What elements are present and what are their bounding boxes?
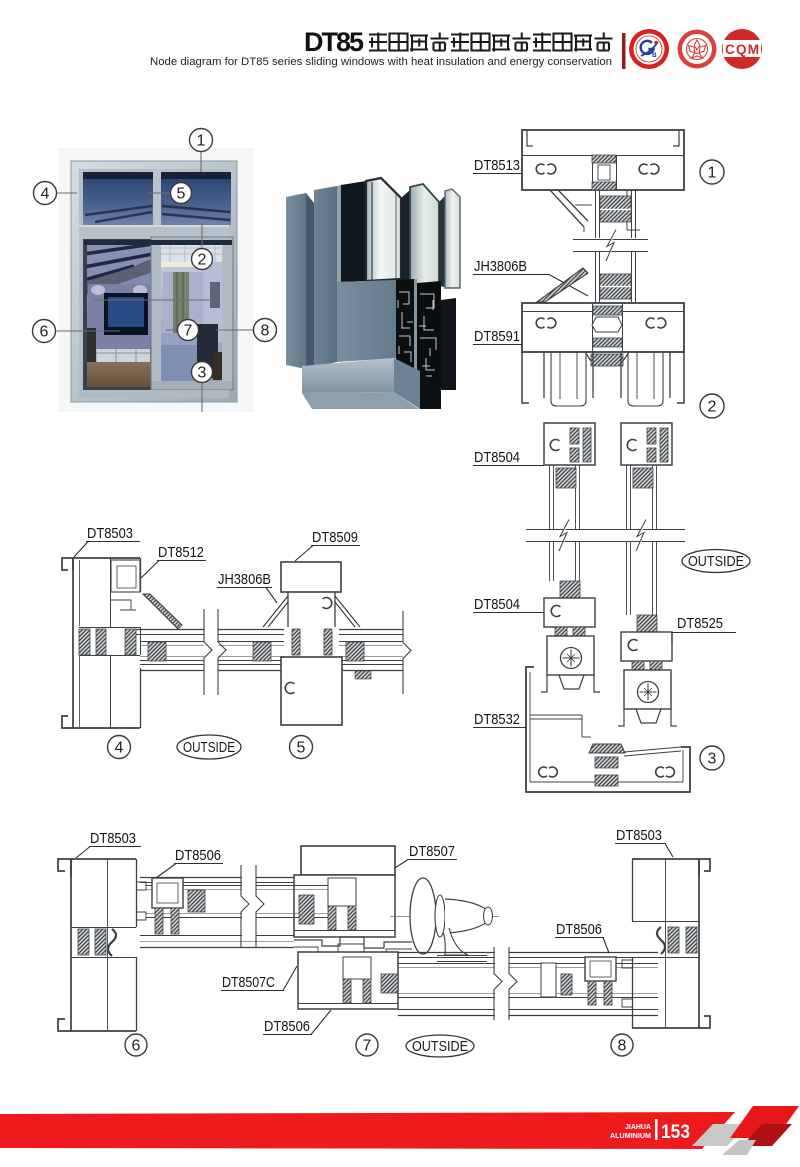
svg-text:DT8591: DT8591 bbox=[474, 328, 520, 345]
svg-text:DT8503: DT8503 bbox=[87, 525, 133, 542]
svg-text:DT8507C: DT8507C bbox=[222, 974, 275, 991]
svg-text:4: 4 bbox=[41, 186, 50, 203]
svg-text:ALUMINIUM: ALUMINIUM bbox=[610, 1131, 651, 1140]
svg-text:153: 153 bbox=[661, 1122, 690, 1143]
svg-text:DT8503: DT8503 bbox=[616, 827, 662, 844]
svg-text:3: 3 bbox=[708, 751, 717, 768]
svg-text:8: 8 bbox=[261, 323, 270, 340]
svg-text:DT8509: DT8509 bbox=[312, 529, 358, 546]
svg-text:DT8506: DT8506 bbox=[264, 1018, 310, 1035]
svg-text:DT8532: DT8532 bbox=[474, 711, 520, 728]
svg-text:CQM: CQM bbox=[725, 42, 759, 57]
svg-text:DT8506: DT8506 bbox=[175, 847, 221, 864]
svg-text:B: B bbox=[652, 52, 657, 59]
svg-text:OUTSIDE: OUTSIDE bbox=[688, 554, 744, 570]
svg-text:7: 7 bbox=[363, 1038, 372, 1055]
svg-text:DT8513: DT8513 bbox=[474, 157, 520, 174]
svg-text:DT8507: DT8507 bbox=[409, 843, 455, 860]
svg-text:JH3806B: JH3806B bbox=[474, 258, 527, 275]
svg-text:JIAHUA: JIAHUA bbox=[625, 1122, 652, 1131]
svg-text:6: 6 bbox=[132, 1038, 141, 1055]
svg-text:DT8506: DT8506 bbox=[556, 921, 602, 938]
svg-text:DT8503: DT8503 bbox=[90, 830, 136, 847]
svg-text:JH3806B: JH3806B bbox=[218, 571, 271, 588]
svg-text:DT8525: DT8525 bbox=[677, 615, 723, 632]
svg-text:4: 4 bbox=[115, 740, 124, 757]
svg-text:1: 1 bbox=[708, 165, 717, 182]
svg-text:8: 8 bbox=[618, 1038, 627, 1055]
svg-text:5: 5 bbox=[177, 186, 186, 203]
svg-text:DT8504: DT8504 bbox=[474, 449, 520, 466]
svg-text:DT8512: DT8512 bbox=[158, 544, 204, 561]
svg-text:5: 5 bbox=[297, 740, 306, 757]
svg-text:DT8504: DT8504 bbox=[474, 596, 520, 613]
svg-text:OUTSIDE: OUTSIDE bbox=[412, 1039, 468, 1055]
svg-text:7: 7 bbox=[184, 323, 193, 340]
svg-text:OUTSIDE: OUTSIDE bbox=[183, 740, 235, 756]
svg-text:DT85: DT85 bbox=[304, 27, 364, 57]
svg-text:2: 2 bbox=[198, 252, 207, 269]
svg-text:Node diagram for DT85 seri: Node diagram for DT85 series sliding win… bbox=[150, 56, 612, 68]
svg-text:1: 1 bbox=[197, 133, 206, 150]
svg-text:3: 3 bbox=[198, 365, 207, 382]
svg-text:2: 2 bbox=[708, 399, 717, 416]
svg-text:6: 6 bbox=[40, 324, 49, 341]
